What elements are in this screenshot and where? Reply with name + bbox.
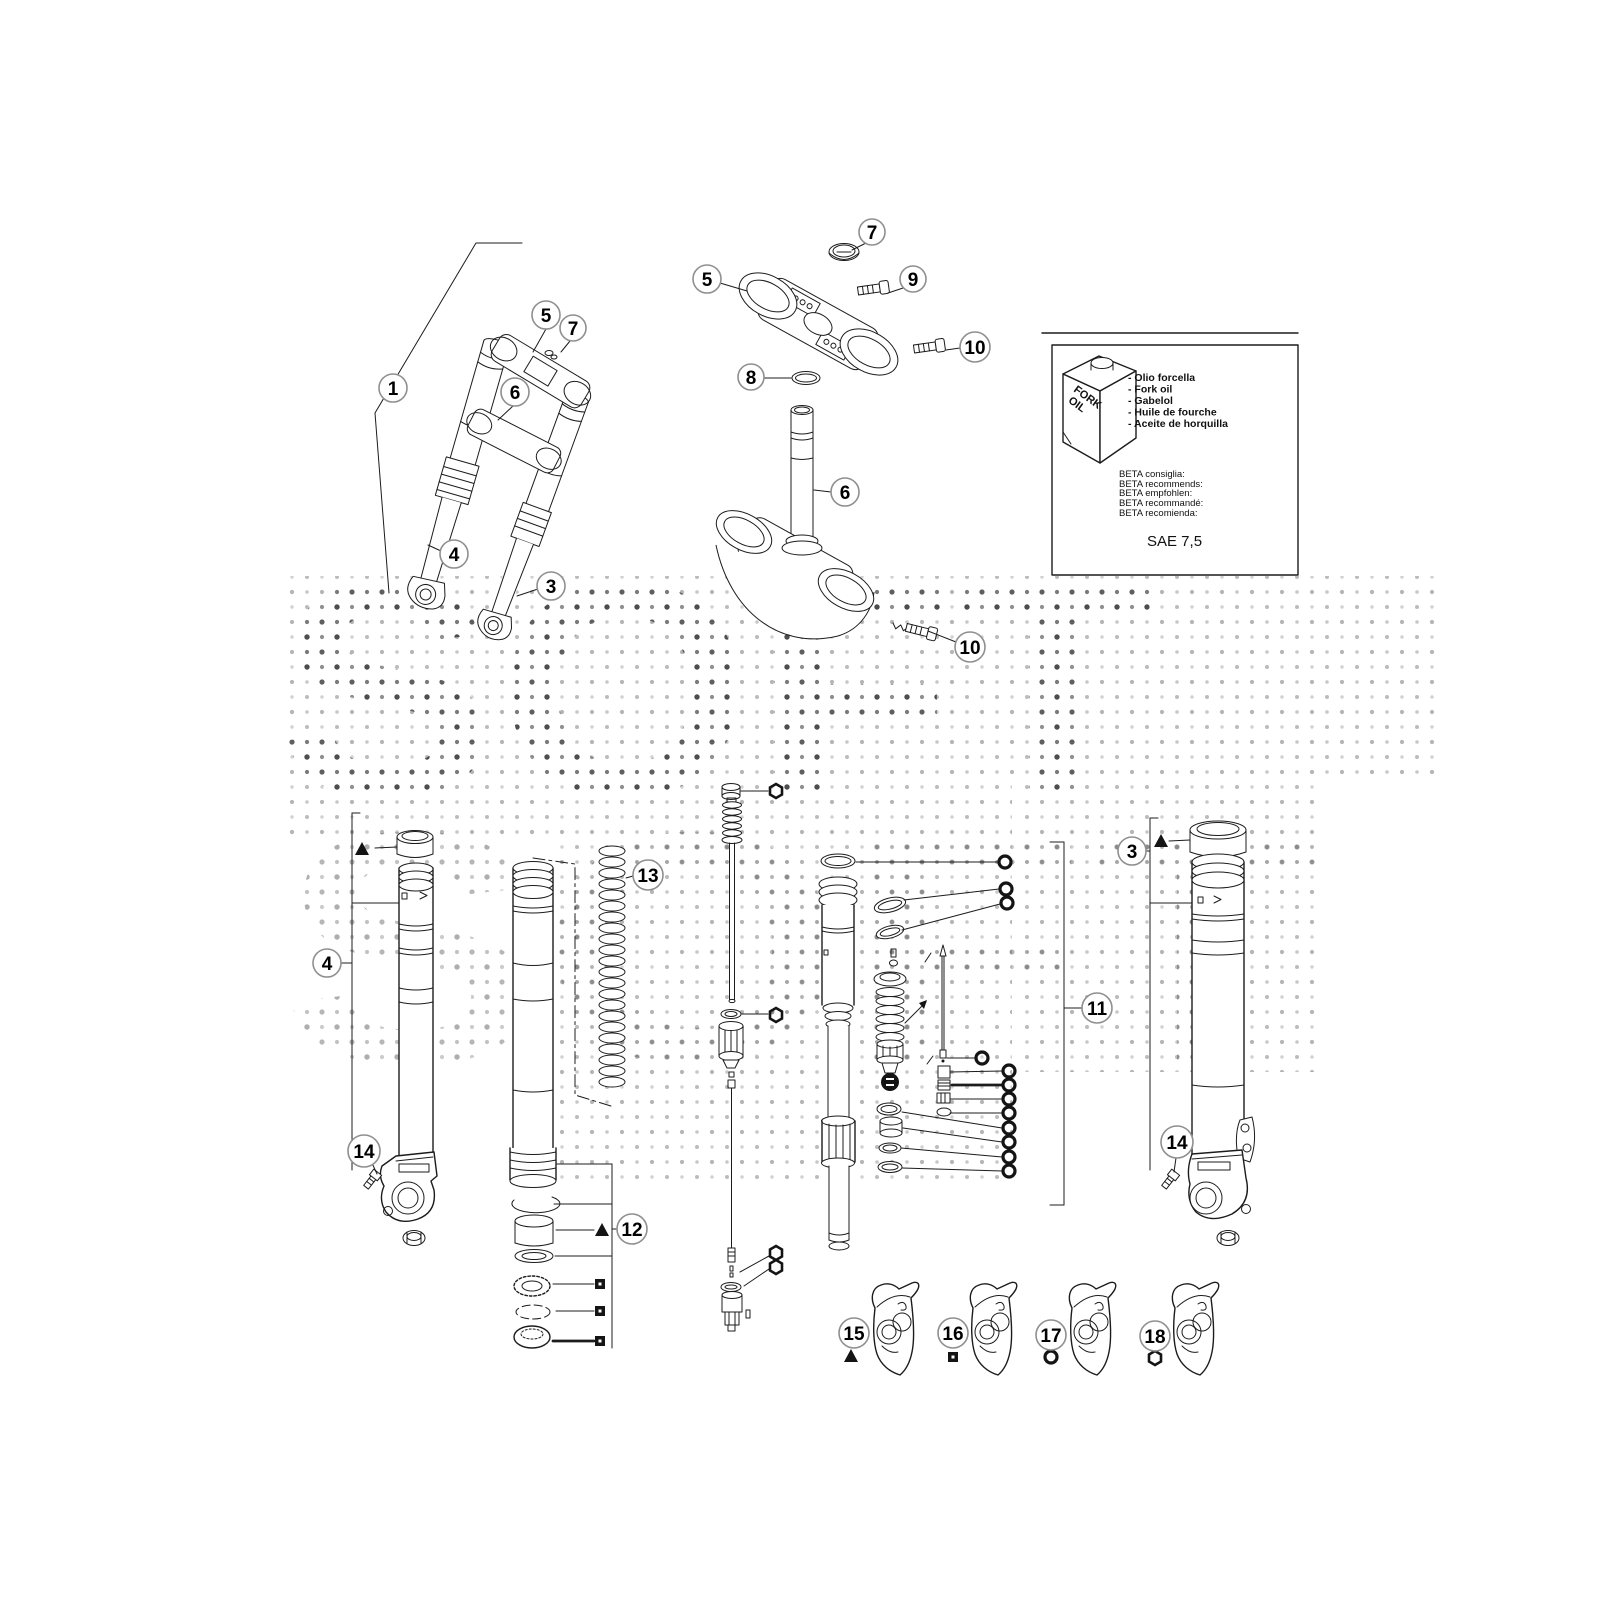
stop-ring [512, 1197, 560, 1213]
kit-bag-17 [1069, 1282, 1115, 1375]
seal-washer [515, 1250, 553, 1263]
callout-12-label: 12 [621, 1220, 642, 1241]
kit-square-icon [948, 1352, 958, 1362]
callout-3-label: 3 [546, 577, 557, 598]
axle-nut [1217, 1231, 1239, 1246]
pinch-bolt-14 [1160, 1169, 1180, 1190]
callout-1-label: 1 [388, 379, 399, 400]
left-axle-clamp [380, 1152, 437, 1221]
callout-5-left[interactable]: 5 [532, 301, 560, 329]
callout-11-label: 11 [1087, 999, 1108, 1020]
callout-10-lower[interactable]: 10 [955, 632, 985, 662]
callout-4-label: 4 [322, 954, 333, 975]
kit-bag-16 [970, 1282, 1016, 1375]
callout-18-label: 18 [1144, 1327, 1165, 1348]
kit-square-marker [595, 1279, 605, 1289]
callout-5-top[interactable]: 5 [693, 265, 721, 293]
callout-1[interactable]: 1 [379, 374, 407, 402]
callout-14-right[interactable]: 14 [1161, 1126, 1193, 1158]
callout-13[interactable]: 13 [633, 860, 663, 890]
callout-17-label: 17 [1040, 1326, 1061, 1347]
callout-5-label: 5 [702, 270, 713, 291]
callout-6-label: 6 [510, 383, 521, 404]
callout-11[interactable]: 11 [1082, 993, 1112, 1023]
kit-bag-15 [872, 1282, 918, 1375]
pinch-bolt-14 [362, 1169, 382, 1190]
clamp-bolt-10 [913, 338, 946, 355]
callout-14-left[interactable]: 14 [348, 1135, 380, 1167]
callout-3-label: 3 [1127, 842, 1138, 863]
cartridge-o-ring [821, 854, 855, 868]
rebound-adjuster [721, 1283, 750, 1332]
callout-8-label: 8 [746, 368, 757, 389]
steering-stem [791, 406, 813, 546]
left-fork-cap [397, 831, 433, 858]
callout-5-label: 5 [541, 306, 552, 327]
kit-bag-18 [1172, 1282, 1218, 1375]
oil-name-it: - Olio forcella [1128, 372, 1195, 384]
callout-13-label: 13 [637, 866, 658, 887]
callout-14-label: 14 [353, 1142, 375, 1163]
kit-hexagon-icon [1149, 1351, 1161, 1365]
oil-seal [514, 1276, 550, 1296]
kit-triangle-icon [844, 1349, 858, 1362]
kit-triangle-marker [595, 1223, 609, 1236]
callout-3-left[interactable]: 3 [537, 572, 565, 600]
top-triple-clamp-drawing [731, 244, 945, 385]
o-ring-8 [792, 372, 820, 385]
callout-6-stem[interactable]: 6 [831, 478, 859, 506]
watermark-text-row2: SOFT [280, 763, 1325, 1132]
callout-18[interactable]: 18 [1140, 1321, 1170, 1351]
callout-15-label: 15 [843, 1324, 865, 1345]
oil-name-es: - Aceite de horquilla [1128, 418, 1228, 430]
callout-9[interactable]: 9 [900, 266, 926, 292]
dust-seal [514, 1326, 550, 1348]
callout-8[interactable]: 8 [738, 364, 764, 390]
oil-name-de: - Gabelol [1128, 395, 1173, 407]
inner-tube [510, 862, 556, 1188]
kit-square-marker [595, 1306, 605, 1316]
fork-exploded-parts-diagram: SOFT SOFT [0, 0, 1600, 1600]
callout-14-label: 14 [1166, 1133, 1188, 1154]
callout-6-left[interactable]: 6 [501, 378, 529, 406]
callout-3-right[interactable]: 3 [1118, 837, 1146, 865]
recommend-es: BETA recomienda: [1119, 508, 1198, 519]
callout-4-left[interactable]: 4 [440, 540, 468, 568]
left-outer-tube [399, 863, 433, 1160]
retaining-clip [516, 1305, 550, 1319]
callout-12[interactable]: 12 [617, 1214, 647, 1244]
callout-15[interactable]: 15 [839, 1318, 869, 1348]
kit-square-marker [595, 1336, 605, 1346]
callout-16[interactable]: 16 [938, 1318, 968, 1348]
right-outer-tube [1192, 854, 1244, 1158]
callout-10-label: 10 [959, 638, 980, 659]
callout-10-label: 10 [964, 338, 985, 359]
oil-name-en: - Fork oil [1128, 384, 1172, 396]
axle-nut [403, 1231, 425, 1246]
diagram-canvas: SOFT SOFT [0, 0, 1600, 1600]
oil-name-fr: - Huile de fourche [1128, 407, 1217, 419]
callout-7-left[interactable]: 7 [560, 315, 586, 341]
callout-17[interactable]: 17 [1036, 1320, 1066, 1350]
right-fork-cap [1190, 821, 1246, 857]
fork-oil-info-box: FORK OIL - Olio forcella - Fork oil - Ga… [1042, 333, 1298, 575]
callout-7-label: 7 [867, 223, 878, 244]
callout-6-label: 6 [840, 483, 851, 504]
rod-seal-ring [721, 1010, 741, 1019]
callout-4-bottom[interactable]: 4 [313, 949, 341, 977]
rebound-rod-tip [728, 1248, 735, 1277]
kit-circle-icon [1045, 1351, 1057, 1363]
callout-7-label: 7 [568, 319, 579, 340]
guide-bushing [515, 1215, 553, 1246]
callout-4-label: 4 [449, 545, 460, 566]
callout-16-label: 16 [942, 1324, 963, 1345]
callout-10-top[interactable]: 10 [960, 332, 990, 362]
callout-9-label: 9 [908, 270, 919, 291]
kit-hexagon-marker [770, 1246, 782, 1260]
callout-7-top[interactable]: 7 [859, 219, 885, 245]
oil-grade: SAE 7,5 [1147, 533, 1202, 550]
clamp-bolt-9 [857, 280, 890, 297]
steering-cap-drawing [829, 244, 859, 261]
kit-hexagon-marker [770, 1260, 782, 1274]
